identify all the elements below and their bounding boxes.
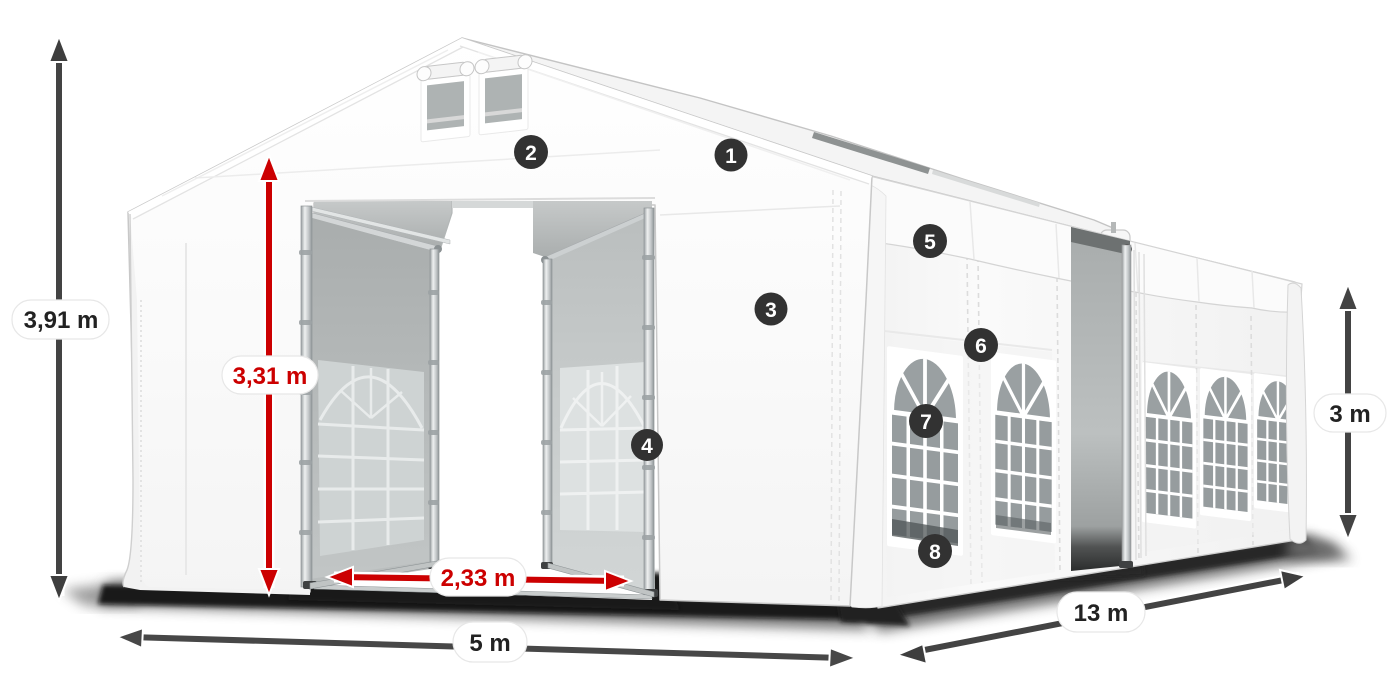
svg-text:7: 7 bbox=[920, 411, 932, 434]
svg-text:3 m: 3 m bbox=[1329, 401, 1370, 428]
svg-text:3,31 m: 3,31 m bbox=[233, 363, 308, 390]
svg-text:3,91 m: 3,91 m bbox=[24, 307, 99, 334]
svg-text:5: 5 bbox=[924, 231, 936, 254]
svg-text:2: 2 bbox=[525, 142, 537, 165]
svg-text:4: 4 bbox=[641, 435, 653, 458]
svg-text:1: 1 bbox=[725, 145, 737, 168]
svg-text:3: 3 bbox=[765, 299, 777, 322]
svg-text:8: 8 bbox=[929, 541, 941, 564]
svg-text:13 m: 13 m bbox=[1074, 600, 1129, 627]
svg-text:6: 6 bbox=[975, 335, 987, 358]
svg-text:2,33 m: 2,33 m bbox=[441, 565, 516, 592]
svg-text:5 m: 5 m bbox=[469, 630, 510, 657]
